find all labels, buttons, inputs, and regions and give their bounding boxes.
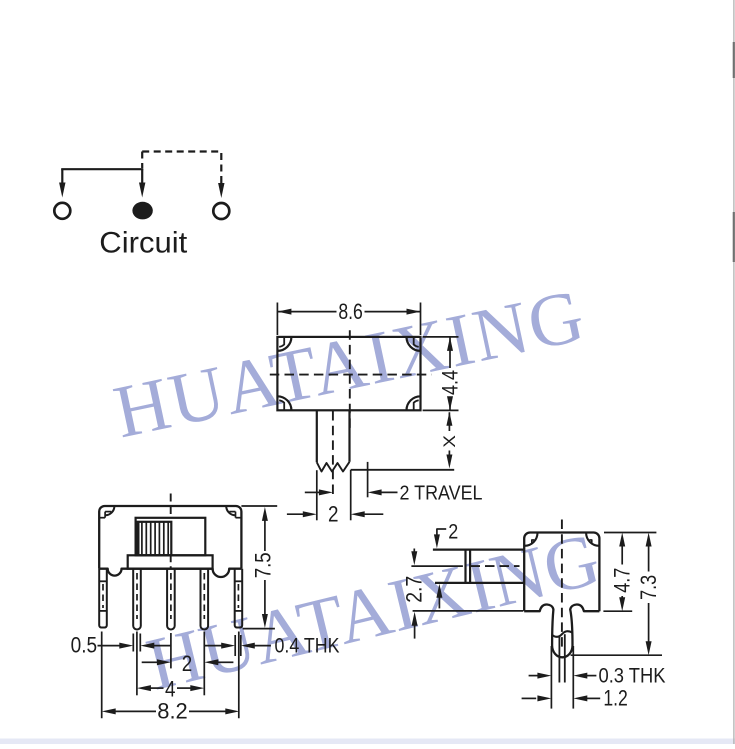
svg-text:Circuit: Circuit — [99, 226, 188, 259]
svg-text:0.5: 0.5 — [71, 633, 98, 658]
svg-text:2: 2 — [182, 651, 193, 676]
svg-text:2 TRAVEL: 2 TRAVEL — [400, 483, 483, 505]
svg-text:2: 2 — [448, 520, 458, 543]
svg-text:4.7: 4.7 — [610, 568, 635, 593]
svg-text:7.5: 7.5 — [250, 552, 275, 578]
svg-text:0.4 THK: 0.4 THK — [275, 635, 340, 658]
svg-text:2.7: 2.7 — [401, 576, 426, 603]
svg-text:0.3 THK: 0.3 THK — [599, 665, 666, 688]
svg-text:4.4: 4.4 — [437, 370, 462, 395]
svg-text:8.6: 8.6 — [338, 299, 363, 324]
svg-text:X: X — [440, 435, 459, 448]
svg-text:2: 2 — [328, 501, 339, 526]
svg-text:1.2: 1.2 — [603, 685, 628, 710]
svg-text:7.3: 7.3 — [636, 575, 661, 600]
svg-text:8.2: 8.2 — [157, 699, 188, 724]
